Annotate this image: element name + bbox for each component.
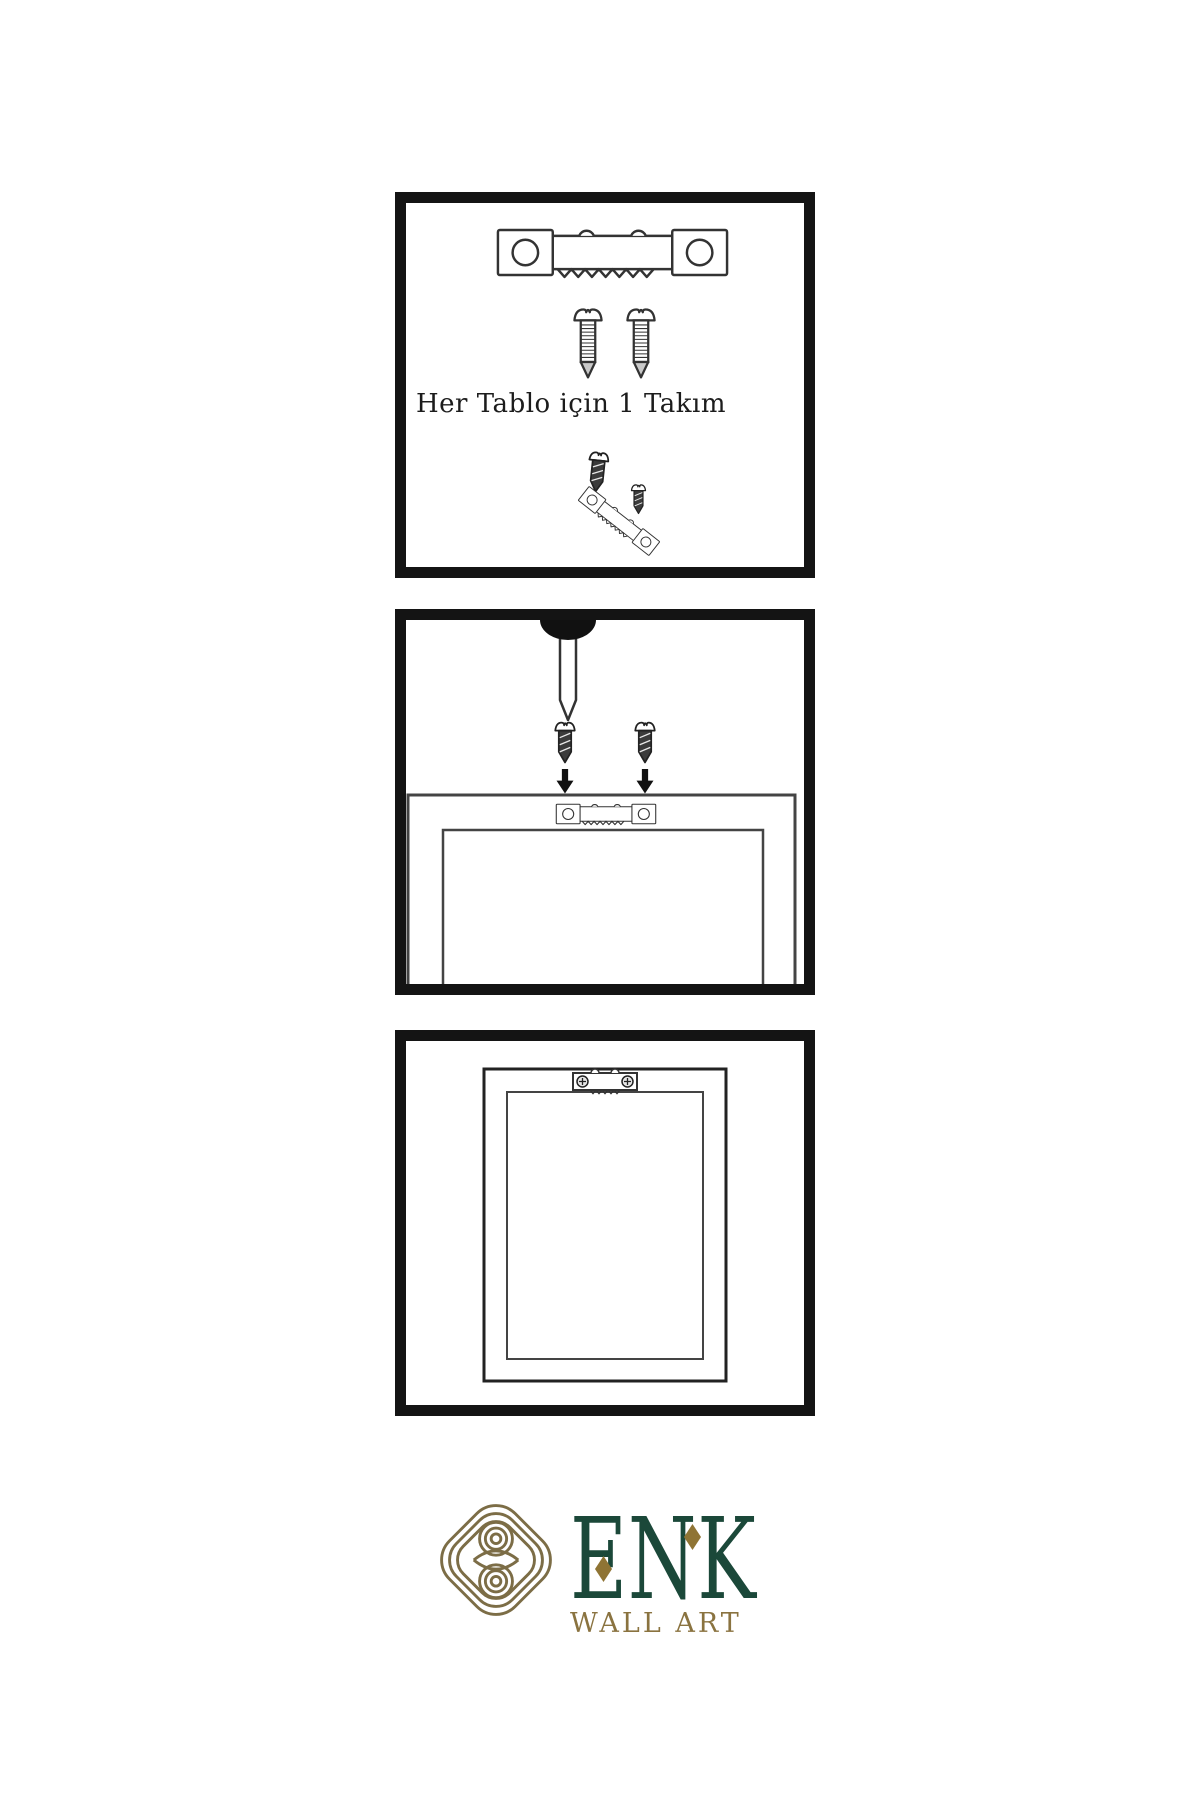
arrow-down-icon — [557, 769, 574, 794]
brand-name: ENK — [570, 1504, 757, 1616]
screw-icon — [635, 723, 654, 763]
brand-wordmark: ENK — [570, 1504, 836, 1600]
panel2-artwork — [406, 620, 804, 984]
arrow-down-icon — [637, 769, 654, 794]
logo-text: ENK WALL ART — [570, 1504, 836, 1639]
panel-hung-frame — [395, 1030, 815, 1416]
knot-icon — [438, 1494, 554, 1626]
panel-install-hanger — [395, 609, 815, 995]
screw-icon — [574, 310, 601, 378]
panel3-artwork — [406, 1041, 804, 1405]
sawtooth-hanger-icon — [556, 804, 655, 824]
panel1-caption: Her Tablo için 1 Takım — [406, 389, 736, 419]
screw-into-hanger-icon — [578, 452, 660, 556]
nail-icon — [540, 620, 596, 720]
brand-logo: ENK WALL ART — [438, 1494, 836, 1639]
sawtooth-hanger-icon — [498, 230, 727, 277]
panel1-artwork — [406, 203, 804, 567]
instruction-sheet: Her Tablo için 1 Takım — [0, 0, 1200, 1800]
screw-icon — [627, 310, 654, 378]
frame-front-icon — [484, 1069, 726, 1381]
panel-hardware-kit: Her Tablo için 1 Takım — [395, 192, 815, 578]
screw-icon — [555, 723, 574, 763]
mounted-sawtooth-hanger-icon — [573, 1069, 637, 1094]
